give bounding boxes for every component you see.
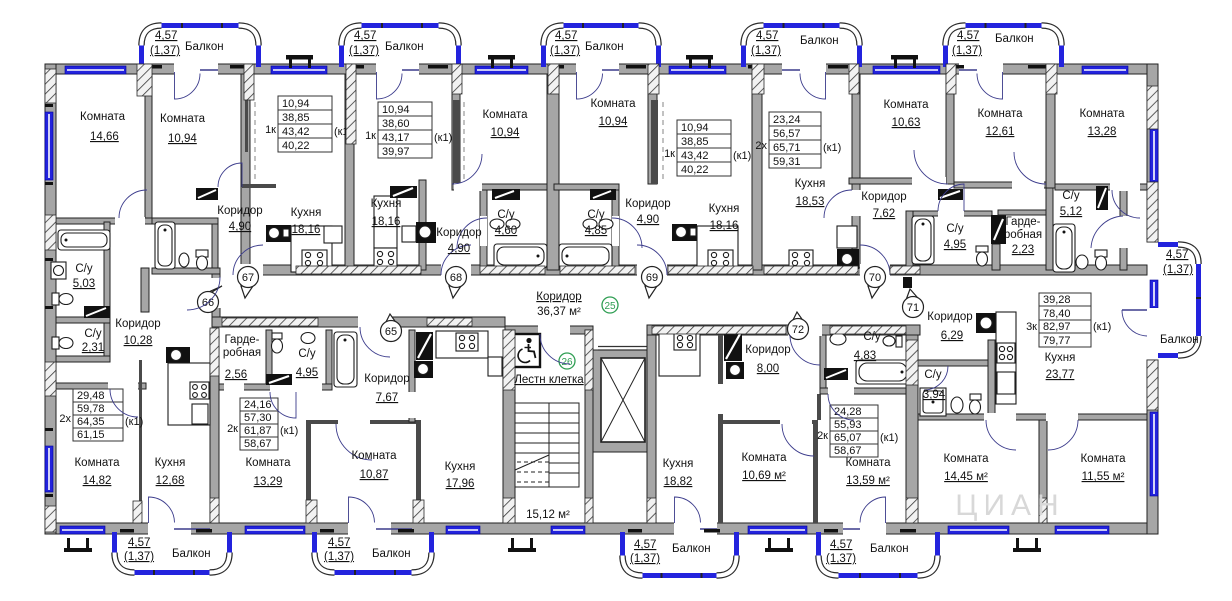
svg-text:68: 68 (450, 272, 462, 284)
svg-text:12,61: 12,61 (986, 126, 1015, 138)
svg-text:(1,37): (1,37) (826, 553, 856, 565)
svg-text:Коридор: Коридор (745, 344, 790, 356)
svg-text:71: 71 (907, 302, 919, 314)
svg-text:70: 70 (869, 272, 881, 284)
svg-text:58,67: 58,67 (244, 438, 272, 450)
svg-text:7,62: 7,62 (873, 208, 895, 220)
svg-text:25: 25 (604, 301, 616, 312)
svg-text:Коридор: Коридор (115, 318, 160, 330)
svg-text:38,85: 38,85 (282, 112, 310, 124)
svg-text:39,28: 39,28 (1043, 294, 1071, 306)
svg-text:4,57: 4,57 (634, 539, 656, 551)
svg-text:38,85: 38,85 (681, 136, 709, 148)
svg-text:4,90: 4,90 (448, 243, 470, 255)
svg-text:61,87: 61,87 (244, 425, 272, 437)
svg-text:Кухня: Кухня (795, 178, 826, 190)
svg-text:Комната: Комната (1080, 453, 1126, 465)
svg-text:65,07: 65,07 (834, 432, 862, 444)
svg-text:(1,37): (1,37) (952, 45, 982, 57)
svg-text:С/у: С/у (497, 209, 515, 221)
svg-text:58,67: 58,67 (834, 445, 862, 457)
svg-text:С/у: С/у (946, 223, 964, 235)
svg-text:56,57: 56,57 (773, 128, 801, 140)
svg-text:Комната: Комната (741, 452, 787, 464)
svg-text:Коридор: Коридор (217, 205, 262, 217)
svg-text:Балкон: Балкон (995, 33, 1034, 45)
svg-text:57,30: 57,30 (244, 412, 272, 424)
svg-text:Балкон: Балкон (800, 35, 839, 47)
svg-text:40,22: 40,22 (282, 140, 310, 152)
svg-text:4,57: 4,57 (756, 30, 778, 42)
svg-text:(1,37): (1,37) (324, 551, 354, 563)
svg-text:Кухня: Кухня (155, 457, 186, 469)
svg-text:10,87: 10,87 (360, 469, 389, 481)
svg-text:Коридор: Коридор (364, 373, 409, 385)
svg-text:79,77: 79,77 (1043, 335, 1071, 347)
svg-text:2,23: 2,23 (1012, 244, 1034, 256)
svg-text:(1,37): (1,37) (124, 551, 154, 563)
svg-text:Коридор: Коридор (625, 198, 670, 210)
svg-text:13,59 м²: 13,59 м² (846, 475, 890, 487)
svg-text:10,69 м²: 10,69 м² (742, 470, 786, 482)
svg-text:3,94: 3,94 (923, 389, 946, 401)
svg-text:(к1): (к1) (434, 132, 452, 144)
svg-text:2к: 2к (817, 430, 828, 442)
svg-text:С/у: С/у (1062, 190, 1080, 202)
svg-text:59,31: 59,31 (773, 156, 801, 168)
svg-text:1к: 1к (365, 130, 376, 142)
svg-text:5,12: 5,12 (1060, 206, 1082, 218)
svg-text:Кухня: Кухня (445, 461, 476, 473)
svg-text:5,03: 5,03 (73, 278, 95, 290)
svg-text:1к: 1к (265, 124, 276, 136)
svg-text:4,83: 4,83 (854, 350, 876, 362)
svg-text:Балкон: Балкон (585, 41, 624, 53)
svg-text:4,57: 4,57 (957, 30, 979, 42)
svg-text:Комната: Комната (943, 453, 989, 465)
svg-text:10,94: 10,94 (681, 122, 709, 134)
svg-text:4,95: 4,95 (944, 239, 966, 251)
svg-text:2х: 2х (755, 140, 767, 152)
svg-text:Кухня: Кухня (291, 207, 322, 219)
svg-text:43,42: 43,42 (282, 126, 310, 138)
svg-text:18,16: 18,16 (292, 224, 321, 236)
svg-text:1к: 1к (664, 148, 675, 160)
svg-text:24,28: 24,28 (834, 406, 862, 418)
svg-text:(к1): (к1) (733, 150, 751, 162)
svg-text:14,66: 14,66 (90, 131, 119, 143)
svg-text:4,57: 4,57 (128, 537, 150, 549)
svg-text:робная: робная (223, 347, 261, 359)
svg-text:10,63: 10,63 (892, 117, 921, 129)
svg-text:15,12 м²: 15,12 м² (526, 509, 570, 521)
svg-text:Коридор: Коридор (927, 311, 972, 323)
svg-text:С/у: С/у (84, 328, 102, 340)
svg-text:2,56: 2,56 (225, 369, 247, 381)
svg-text:4,90: 4,90 (229, 221, 251, 233)
svg-text:18,82: 18,82 (664, 476, 693, 488)
svg-text:4,57: 4,57 (328, 537, 350, 549)
svg-text:10,94: 10,94 (491, 127, 520, 139)
svg-text:67: 67 (242, 272, 254, 284)
svg-text:4,57: 4,57 (555, 30, 577, 42)
svg-text:43,17: 43,17 (382, 132, 410, 144)
svg-text:(к1): (к1) (1093, 321, 1111, 333)
svg-text:Комната: Комната (74, 457, 120, 469)
svg-text:82,97: 82,97 (1043, 321, 1071, 333)
svg-text:8,00: 8,00 (757, 363, 779, 375)
svg-text:72: 72 (792, 324, 804, 336)
svg-text:18,16: 18,16 (710, 220, 739, 232)
svg-text:6,29: 6,29 (941, 330, 963, 342)
svg-text:Комната: Комната (883, 99, 929, 111)
svg-text:С/у: С/у (587, 209, 605, 221)
svg-text:10,28: 10,28 (124, 335, 153, 347)
svg-text:Комната: Комната (245, 457, 291, 469)
svg-text:59,78: 59,78 (77, 403, 105, 415)
svg-text:17,96: 17,96 (446, 478, 475, 490)
svg-text:Комната: Комната (482, 109, 528, 121)
svg-text:Балкон: Балкон (870, 543, 909, 555)
svg-text:ЦИАН: ЦИАН (955, 489, 1064, 522)
svg-text:18,16: 18,16 (372, 216, 401, 228)
svg-text:55,93: 55,93 (834, 419, 862, 431)
svg-text:69: 69 (646, 272, 658, 284)
svg-text:2,31: 2,31 (82, 342, 104, 354)
svg-text:4,95: 4,95 (296, 367, 318, 379)
svg-text:(1,37): (1,37) (1163, 264, 1193, 276)
svg-text:4,85: 4,85 (585, 225, 607, 237)
svg-text:робная: робная (1004, 229, 1042, 241)
svg-text:29,48: 29,48 (77, 390, 105, 402)
svg-text:(к1): (к1) (823, 142, 841, 154)
svg-text:Кухня: Кухня (709, 203, 740, 215)
svg-text:39,97: 39,97 (382, 146, 410, 158)
svg-text:23,24: 23,24 (773, 114, 801, 126)
svg-text:Балкон: Балкон (185, 41, 224, 53)
svg-text:14,82: 14,82 (83, 475, 112, 487)
svg-text:11,55 м²: 11,55 м² (1082, 471, 1125, 483)
svg-text:Коридор: Коридор (536, 291, 581, 303)
svg-text:Балкон: Балкон (172, 548, 211, 560)
svg-text:(к1): (к1) (280, 425, 298, 437)
svg-text:(1,37): (1,37) (751, 45, 781, 57)
svg-text:3к: 3к (1026, 321, 1037, 333)
svg-text:10,94: 10,94 (599, 116, 628, 128)
svg-text:(1,37): (1,37) (550, 45, 580, 57)
svg-text:Лестн клетка: Лестн клетка (514, 374, 584, 386)
svg-text:40,22: 40,22 (681, 164, 709, 176)
svg-text:10,94: 10,94 (168, 133, 197, 145)
svg-text:Комната: Комната (977, 108, 1023, 120)
svg-text:10,94: 10,94 (282, 98, 310, 110)
svg-text:24,16: 24,16 (244, 399, 272, 411)
svg-text:78,40: 78,40 (1043, 308, 1071, 320)
svg-text:Комната: Комната (590, 98, 636, 110)
svg-text:4,57: 4,57 (155, 30, 177, 42)
svg-text:13,28: 13,28 (1088, 126, 1117, 138)
svg-text:Гарде-: Гарде- (224, 334, 259, 346)
svg-text:Балкон: Балкон (672, 543, 711, 555)
svg-text:С/у: С/у (75, 263, 93, 275)
svg-text:(1,37): (1,37) (349, 45, 379, 57)
svg-text:Балкон: Балкон (385, 41, 424, 53)
svg-text:7,67: 7,67 (376, 392, 398, 404)
svg-text:Коридор: Коридор (861, 191, 906, 203)
svg-text:Балкон: Балкон (372, 548, 411, 560)
svg-text:18,53: 18,53 (796, 196, 825, 208)
svg-text:(к1): (к1) (125, 416, 143, 428)
svg-text:(1,37): (1,37) (630, 553, 660, 565)
svg-text:2к: 2к (227, 423, 238, 435)
svg-text:12,68: 12,68 (156, 475, 185, 487)
svg-text:Балкон: Балкон (1160, 334, 1199, 346)
svg-text:Кухня: Кухня (371, 198, 402, 210)
svg-text:Гарде-: Гарде- (1005, 216, 1040, 228)
svg-text:(к1): (к1) (880, 432, 898, 444)
svg-text:Кухня: Кухня (663, 458, 694, 470)
svg-text:Комната: Комната (845, 457, 891, 469)
svg-text:Комната: Комната (351, 450, 397, 462)
svg-text:23,77: 23,77 (1046, 369, 1075, 381)
svg-text:С/у: С/у (298, 348, 316, 360)
svg-text:4,57: 4,57 (354, 30, 376, 42)
svg-text:(1,37): (1,37) (150, 45, 180, 57)
svg-text:13,29: 13,29 (254, 476, 283, 488)
svg-text:64,35: 64,35 (77, 416, 105, 428)
svg-text:Комната: Комната (160, 113, 206, 125)
svg-text:26: 26 (561, 357, 573, 368)
svg-text:2х: 2х (59, 413, 71, 425)
svg-text:4,57: 4,57 (830, 539, 852, 551)
svg-text:С/у: С/у (863, 331, 881, 343)
svg-text:36,37 м²: 36,37 м² (537, 306, 581, 318)
svg-text:С/у: С/у (924, 369, 942, 381)
svg-text:14,45 м²: 14,45 м² (944, 471, 988, 483)
svg-text:4,57: 4,57 (1166, 249, 1188, 261)
svg-text:Коридор: Коридор (436, 227, 481, 239)
svg-text:65,71: 65,71 (773, 142, 801, 154)
svg-text:Комната: Комната (80, 111, 126, 123)
svg-text:Комната: Комната (1079, 108, 1125, 120)
svg-text:4,60: 4,60 (495, 225, 517, 237)
svg-text:38,60: 38,60 (382, 118, 410, 130)
svg-text:Кухня: Кухня (1045, 352, 1076, 364)
svg-text:61,15: 61,15 (77, 429, 105, 441)
svg-text:43,42: 43,42 (681, 150, 709, 162)
svg-text:65: 65 (385, 326, 397, 338)
svg-text:4,90: 4,90 (637, 214, 659, 226)
svg-text:10,94: 10,94 (382, 104, 410, 116)
